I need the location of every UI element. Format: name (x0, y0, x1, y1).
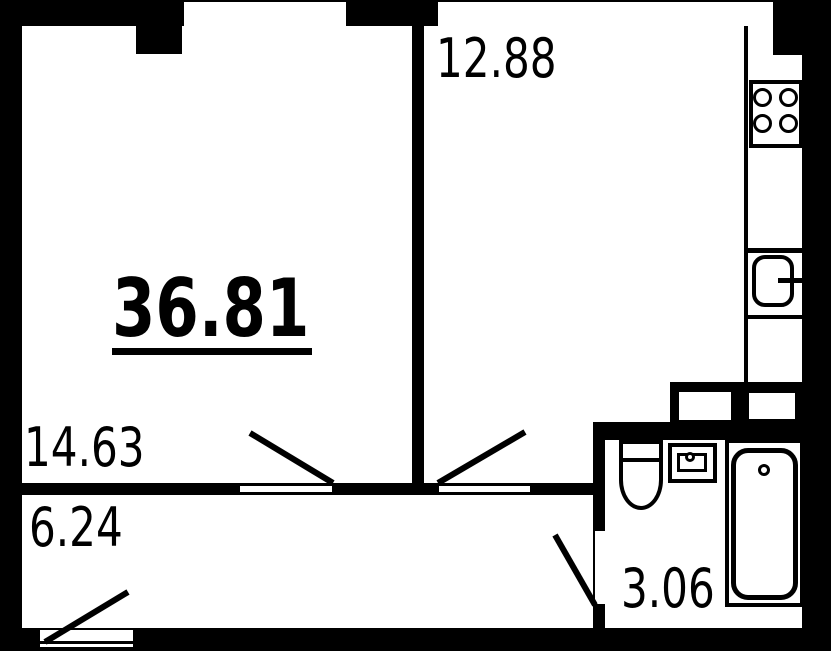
door-swing-icon-bathroom (555, 535, 595, 605)
bathroom-door-leaf (595, 531, 605, 604)
stove-burner-icon (753, 88, 772, 107)
toilet-icon (619, 440, 663, 510)
kitchen-area-label: 12.88 (436, 32, 557, 86)
left-wall (0, 0, 22, 651)
counter-section-line-bottom (744, 315, 802, 319)
right-wall (802, 0, 831, 651)
door-swing-icon-living (250, 433, 333, 483)
hallway-area-label: 6.24 (29, 501, 123, 555)
window-icon-kitchen (438, 2, 773, 26)
counter-section-line-top (744, 248, 802, 253)
stove-burner-icon (779, 88, 798, 107)
room-partition-wall (412, 26, 424, 483)
ventilation-duct-icon-right (749, 393, 795, 419)
stove-burner-icon (753, 114, 772, 133)
bathroom-area-label: 3.06 (621, 562, 715, 616)
window-icon-living (184, 2, 346, 26)
ventilation-duct-icon-left (679, 392, 731, 420)
washbasin-faucet-icon (685, 452, 695, 462)
entrance-door-leaf-edge (40, 641, 133, 644)
toilet-tank-line (623, 458, 659, 462)
door-swing-icon-kitchen (438, 432, 525, 483)
apartment-floor-plan: 36.81 12.88 14.63 6.24 3.06 (0, 0, 831, 651)
kitchen-sink-faucet-icon (778, 278, 803, 283)
living-room-area-label: 14.63 (24, 421, 145, 475)
living-door-leaf (240, 486, 332, 492)
total-area-underline (112, 348, 312, 355)
kitchen-door-leaf (439, 486, 530, 492)
top-right-corner-block (773, 0, 831, 55)
bathtub-drain-icon (758, 464, 770, 476)
stove-burner-icon (779, 114, 798, 133)
total-area-label: 36.81 (112, 269, 309, 349)
pilaster-column (136, 26, 182, 54)
kitchen-counter-divider (744, 26, 748, 382)
entrance-door-opening (40, 630, 133, 647)
